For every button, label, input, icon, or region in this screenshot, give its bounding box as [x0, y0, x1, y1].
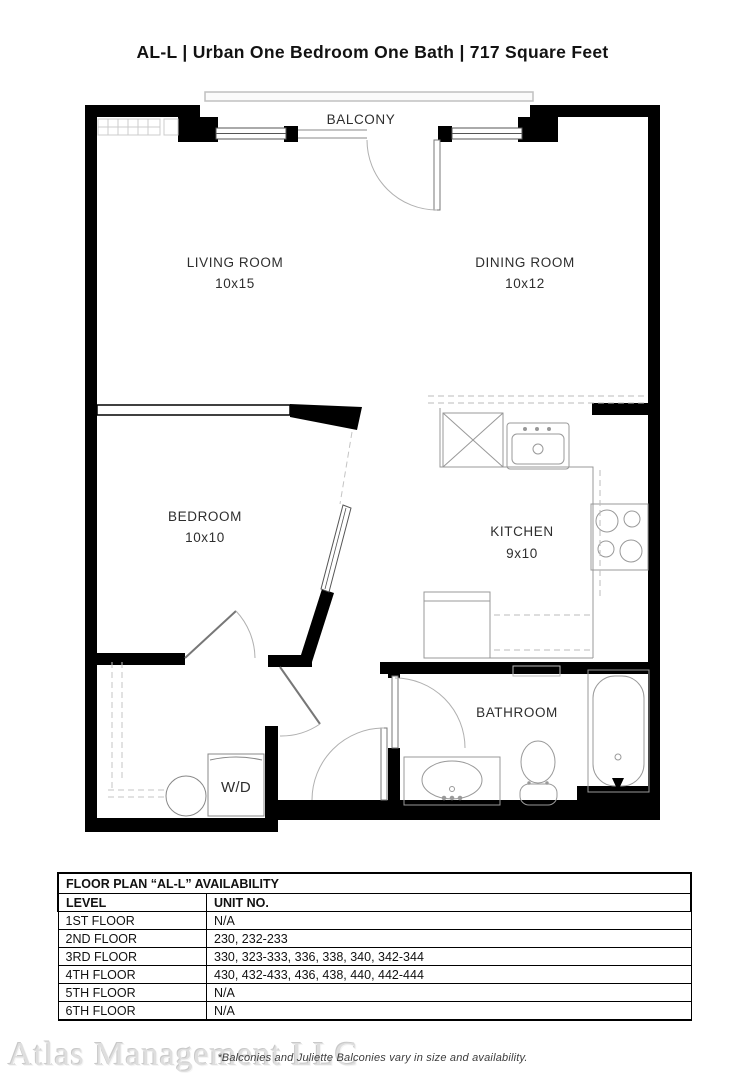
wall-bedroom-angled: [300, 589, 334, 662]
wall-wd-bottom: [85, 818, 278, 832]
vanity-sink: [404, 757, 500, 805]
walls: [85, 105, 660, 832]
wall-window-block-left: [178, 117, 218, 142]
kitchen-cabinet-x: [443, 413, 503, 467]
bedroom-door-swing: [236, 611, 255, 658]
level-cell: 5TH FLOOR: [58, 984, 207, 1002]
bedroom-door: [185, 611, 255, 658]
balcony-door-swing: [367, 140, 437, 210]
closet-door: [280, 667, 320, 736]
kitchen-sink: [507, 423, 569, 469]
table-row: 2ND FLOOR 230, 232-233: [58, 930, 691, 948]
table-header-row: LEVEL UNIT NO.: [58, 894, 691, 912]
wall-living-bedroom: [97, 405, 290, 415]
water-heater-circle: [166, 776, 206, 816]
kitchen-label: KITCHEN: [490, 524, 553, 539]
level-cell: 1ST FLOOR: [58, 912, 207, 930]
units-cell: 330, 323-333, 336, 338, 340, 342-344: [207, 948, 692, 966]
bathroom-door-swing: [395, 678, 465, 748]
bathtub: [588, 670, 649, 792]
wall-bedroom-bottom: [97, 653, 185, 665]
entry-door: [312, 728, 387, 800]
units-cell: N/A: [207, 1002, 692, 1021]
living-room-dims: 10x15: [215, 276, 255, 291]
floorplan-page: AL-L | Urban One Bedroom One Bath | 717 …: [0, 0, 745, 1080]
closet-door-swing: [280, 724, 320, 736]
table-title: FLOOR PLAN “AL-L” AVAILABILITY: [58, 873, 691, 894]
units-cell: 430, 432-433, 436, 438, 440, 442-444: [207, 966, 692, 984]
entry-door-leaf: [381, 728, 387, 800]
balcony-railing: [205, 92, 533, 101]
wall-kitchen-bath-divider: [380, 662, 648, 674]
refrigerator: [424, 592, 490, 658]
wall-bottom: [265, 800, 660, 820]
wall-bedroom-stub: [268, 655, 312, 667]
wall-bath-left-bottom: [388, 748, 400, 804]
table-row: 3RD FLOOR 330, 323-333, 336, 338, 340, 3…: [58, 948, 691, 966]
table-row: 6TH FLOOR N/A: [58, 1002, 691, 1021]
table-row: 1ST FLOOR N/A: [58, 912, 691, 930]
units-cell: 230, 232-233: [207, 930, 692, 948]
bathroom-label: BATHROOM: [476, 705, 558, 720]
level-cell: 3RD FLOOR: [58, 948, 207, 966]
baseboard-heater: [98, 119, 178, 135]
dining-room-dims: 10x12: [505, 276, 545, 291]
dining-room-label: DINING ROOM: [475, 255, 575, 270]
washer-dryer-label: W/D: [221, 779, 251, 796]
wall-kitchen-stub: [592, 403, 648, 415]
wall-right: [648, 105, 660, 820]
balcony-door: [298, 130, 440, 210]
col-header-level: LEVEL: [58, 894, 207, 912]
table-row: 5TH FLOOR N/A: [58, 984, 691, 1002]
bathroom-door: [392, 676, 465, 748]
balcony-label: BALCONY: [327, 112, 396, 127]
bedroom-door-leaf: [185, 611, 236, 658]
wall-left: [85, 105, 97, 832]
kitchen-dims: 9x10: [506, 546, 538, 561]
bathroom-door-leaf: [392, 676, 398, 748]
level-cell: 2ND FLOOR: [58, 930, 207, 948]
bedroom-sliding-door: [321, 432, 352, 592]
bathroom-fixtures: [404, 670, 649, 805]
windows: [216, 128, 522, 139]
level-cell: 6TH FLOOR: [58, 1002, 207, 1021]
table-row: 4TH FLOOR 430, 432-433, 436, 438, 440, 4…: [58, 966, 691, 984]
bedroom-label: BEDROOM: [168, 509, 242, 524]
entry-door-swing: [312, 728, 384, 800]
col-header-unit-no: UNIT NO.: [207, 894, 692, 912]
wall-top-right: [530, 105, 660, 117]
level-cell: 4TH FLOOR: [58, 966, 207, 984]
closet-dashed-outline: [108, 662, 168, 797]
sliding-door-panel: [321, 505, 351, 592]
availability-table: FLOOR PLAN “AL-L” AVAILABILITY LEVEL UNI…: [57, 872, 692, 1021]
living-room-label: LIVING ROOM: [187, 255, 284, 270]
wall-window-block-right: [518, 117, 558, 142]
bedroom-dims: 10x10: [185, 530, 225, 545]
footnote: *Balconies and Juliette Balconies vary i…: [0, 1052, 745, 1064]
washer-dryer-top: [210, 757, 262, 760]
units-cell: N/A: [207, 984, 692, 1002]
closet-door-leaf: [280, 667, 320, 724]
wall-top-left: [85, 105, 200, 117]
units-cell: N/A: [207, 912, 692, 930]
toilet: [520, 741, 557, 805]
wall-bedroom-wedge: [290, 404, 362, 430]
table-title-row: FLOOR PLAN “AL-L” AVAILABILITY: [58, 873, 691, 894]
balcony-door-leaf: [434, 140, 440, 210]
